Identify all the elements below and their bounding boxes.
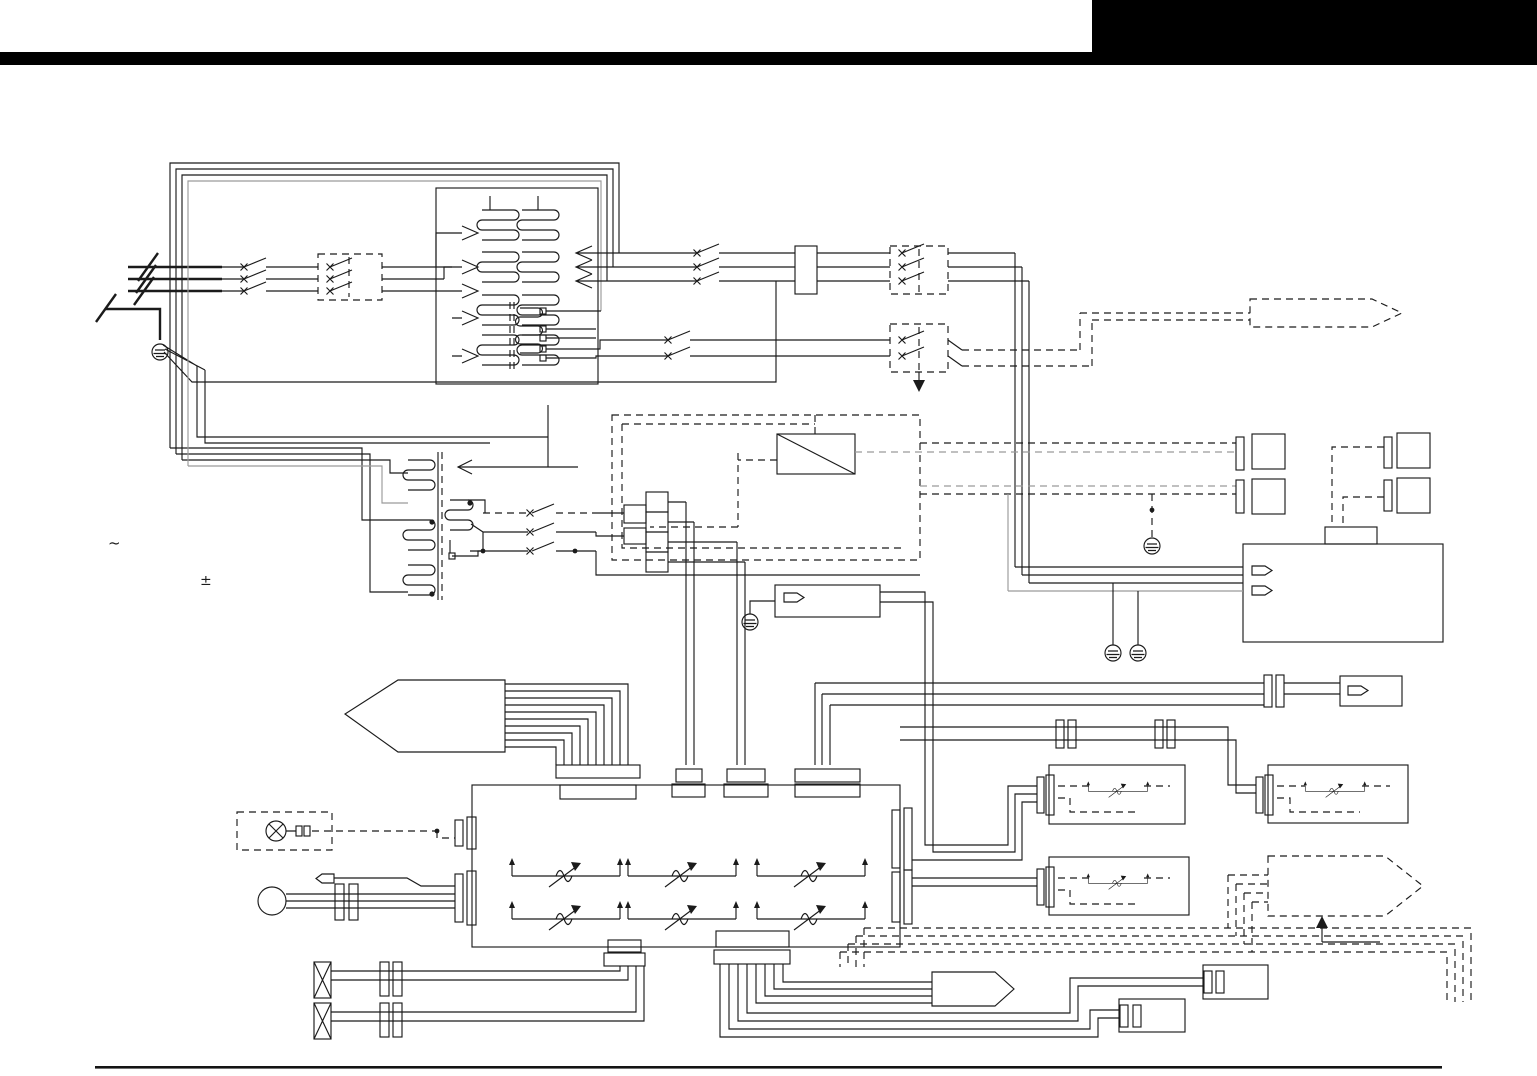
diagram-canvas: ~ ± <box>0 0 1537 1076</box>
pin-lug-icon <box>1252 586 1272 595</box>
harness-arrow-dashed-bottom-right <box>1268 856 1423 916</box>
pin-lug-icon <box>1252 566 1272 575</box>
knob-icon <box>258 887 286 915</box>
control-transformer <box>403 405 578 600</box>
terminal-stack <box>624 492 745 765</box>
remote-connectors <box>1236 433 1430 544</box>
trimmer-icon <box>625 901 739 930</box>
auxiliary-output-run <box>546 299 1402 392</box>
down-arrow-icon <box>913 380 925 392</box>
ac-symbol-label: ~ <box>108 534 121 552</box>
trimmer-icon <box>754 901 868 930</box>
option-connector-box <box>1119 999 1185 1032</box>
trimmer-icon <box>754 858 868 887</box>
left-harness-arrow <box>345 680 628 765</box>
sense-module <box>742 585 1037 886</box>
up-arrow-icon <box>1316 916 1328 928</box>
relay-contacts <box>470 504 920 575</box>
harness-arrow-dashed-top-right <box>1250 299 1402 327</box>
fan-icon <box>314 962 331 998</box>
pin-lug-icon <box>784 593 804 602</box>
option-connector-box <box>1203 965 1268 999</box>
header-title-block <box>1092 0 1537 63</box>
cooling-fans <box>314 962 644 1039</box>
power-supply-box <box>1008 494 1443 661</box>
trimmer-icon <box>625 858 739 887</box>
bottom-harness <box>720 964 1268 1037</box>
trimmer-icon <box>509 901 623 930</box>
dashed-bus-rectifier <box>612 415 1236 560</box>
three-phase-supply-input <box>96 253 318 340</box>
feedback-line <box>458 405 578 467</box>
harness-arrow-right <box>932 972 1014 1006</box>
trimmer-icon <box>1087 781 1150 797</box>
control-pcb <box>455 765 912 966</box>
ground-icon <box>742 614 758 630</box>
main-transformer <box>436 188 601 384</box>
ground-icon <box>1144 538 1160 554</box>
line-contactor-1 <box>318 254 452 300</box>
fan-icon <box>314 1003 331 1039</box>
indicator-lamp <box>237 812 455 850</box>
trimmer-icon <box>509 858 623 887</box>
trimmer-box-1 <box>1049 765 1185 824</box>
polarity-symbol-label: ± <box>200 573 212 589</box>
trimmer-icon <box>1087 873 1150 889</box>
interface-run <box>815 675 1402 765</box>
footer-rule <box>95 1066 1442 1069</box>
trimmer-box-2 <box>1268 765 1408 823</box>
trimmer-icon <box>1304 781 1367 797</box>
left-wire-loops <box>170 163 619 592</box>
ground-icon <box>1130 645 1146 661</box>
output-terminal-block <box>795 246 817 294</box>
control-knob <box>258 874 455 920</box>
manual-page: ~ ± <box>0 0 1537 1076</box>
ground-icon <box>1105 645 1121 661</box>
pin-lug-icon <box>1348 686 1368 695</box>
